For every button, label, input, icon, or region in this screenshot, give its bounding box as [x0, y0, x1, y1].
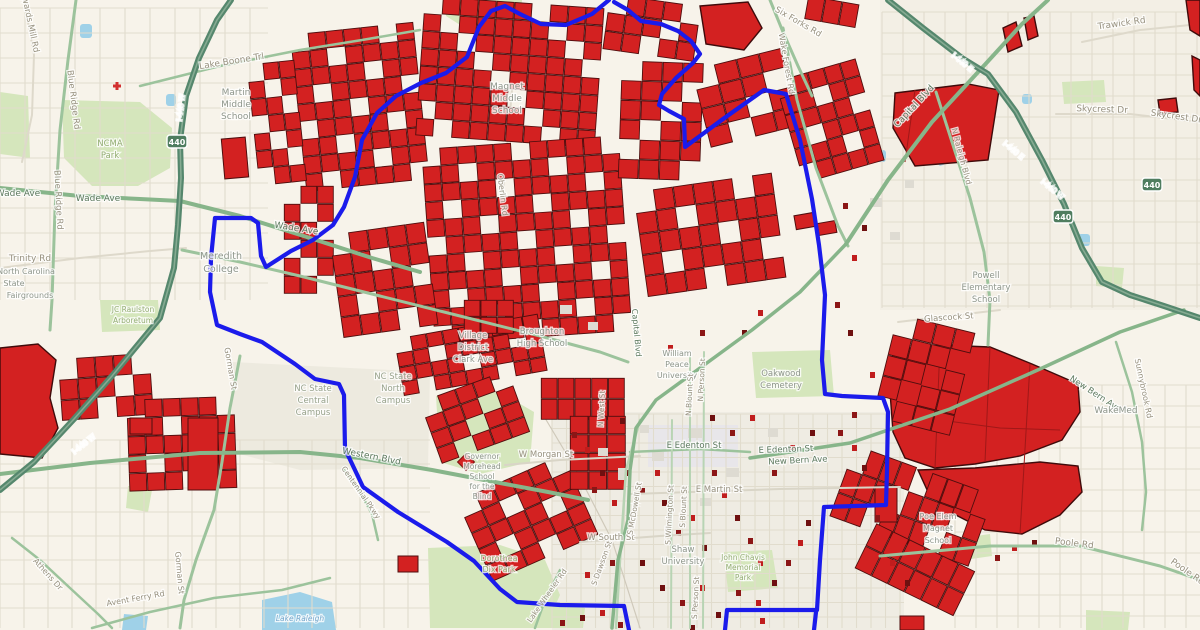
map-label: JC Raulston	[111, 305, 155, 314]
svg-text:440: 440	[1144, 181, 1161, 190]
map-label: Wade Ave	[0, 189, 41, 199]
map-label: School	[470, 472, 495, 481]
map-label: Shaw	[672, 545, 695, 555]
map-label: School	[972, 295, 1000, 305]
map-label: College	[203, 264, 239, 275]
map-canvas[interactable]: 440440440Edwards Mill RdLake Boone TrlMa…	[0, 0, 1200, 630]
map-label: WakeMed	[1094, 406, 1137, 416]
map-label: N West St	[596, 390, 607, 427]
map-label: Fairgrounds	[7, 291, 54, 300]
map-label: Wade Ave	[76, 194, 121, 204]
map-label: Skycrest Dr	[1076, 104, 1128, 116]
map-label: Elementary	[962, 283, 1011, 293]
map-label: Middle	[492, 94, 522, 104]
map-label: School	[492, 106, 522, 116]
map-label: Broughton	[520, 327, 564, 337]
map-label: NC State	[374, 372, 412, 382]
map-label: Memorial	[726, 563, 761, 572]
map-label: Clark Ave	[453, 355, 493, 365]
map-label: Magnet	[923, 524, 953, 533]
map-label: E Edenton St	[667, 441, 722, 451]
map-label: Morehead	[463, 462, 501, 471]
map-label: North Carolina	[0, 267, 55, 276]
map-label: John Chavis	[720, 553, 765, 562]
map-label: W Morgan St	[519, 450, 574, 460]
map-label: State	[3, 279, 24, 288]
map-label: Meredith	[200, 251, 242, 262]
map-label: Campus	[296, 408, 331, 418]
map-label: Cemetery	[760, 381, 802, 391]
map-label: E Martin St	[696, 485, 743, 495]
svg-text:440: 440	[169, 138, 186, 147]
map-label: Trinity Rd	[8, 254, 51, 264]
raleigh-parcel-map[interactable]: 440440440Edwards Mill RdLake Boone TrlMa…	[0, 0, 1200, 630]
map-label: for the	[469, 482, 494, 491]
map-label: School	[925, 536, 952, 545]
map-label: Dorothea	[480, 554, 517, 563]
map-label: Middle	[221, 100, 251, 110]
map-label: Lake Raleigh	[276, 614, 324, 623]
map-label: High School	[517, 339, 567, 349]
map-label: Governor	[465, 452, 501, 461]
map-label: Magnet	[490, 82, 524, 92]
map-label: Peace	[665, 360, 689, 369]
map-label: University	[662, 557, 705, 567]
svg-text:440: 440	[1055, 213, 1072, 222]
map-label: Blind	[473, 492, 492, 501]
map-label: E Edenton St	[758, 444, 814, 456]
map-label: Arboretum	[113, 316, 153, 325]
map-label: William	[662, 349, 692, 358]
map-label: Dix Park	[483, 565, 516, 574]
map-label: Martin	[222, 88, 251, 98]
map-label: Poe Elem	[920, 512, 957, 521]
map-label: Park	[735, 573, 752, 582]
map-label: Oakwood	[761, 369, 801, 379]
map-label: Village	[459, 331, 488, 341]
map-label: NC State	[294, 384, 332, 394]
map-label: School	[221, 112, 251, 122]
map-label: Central	[298, 396, 329, 406]
map-label: Park	[101, 151, 119, 161]
map-label: North	[381, 384, 405, 394]
map-label: NCMA	[97, 139, 123, 149]
map-label: Powell	[973, 271, 1000, 281]
map-label: Campus	[376, 396, 411, 406]
map-label: District	[458, 343, 489, 353]
